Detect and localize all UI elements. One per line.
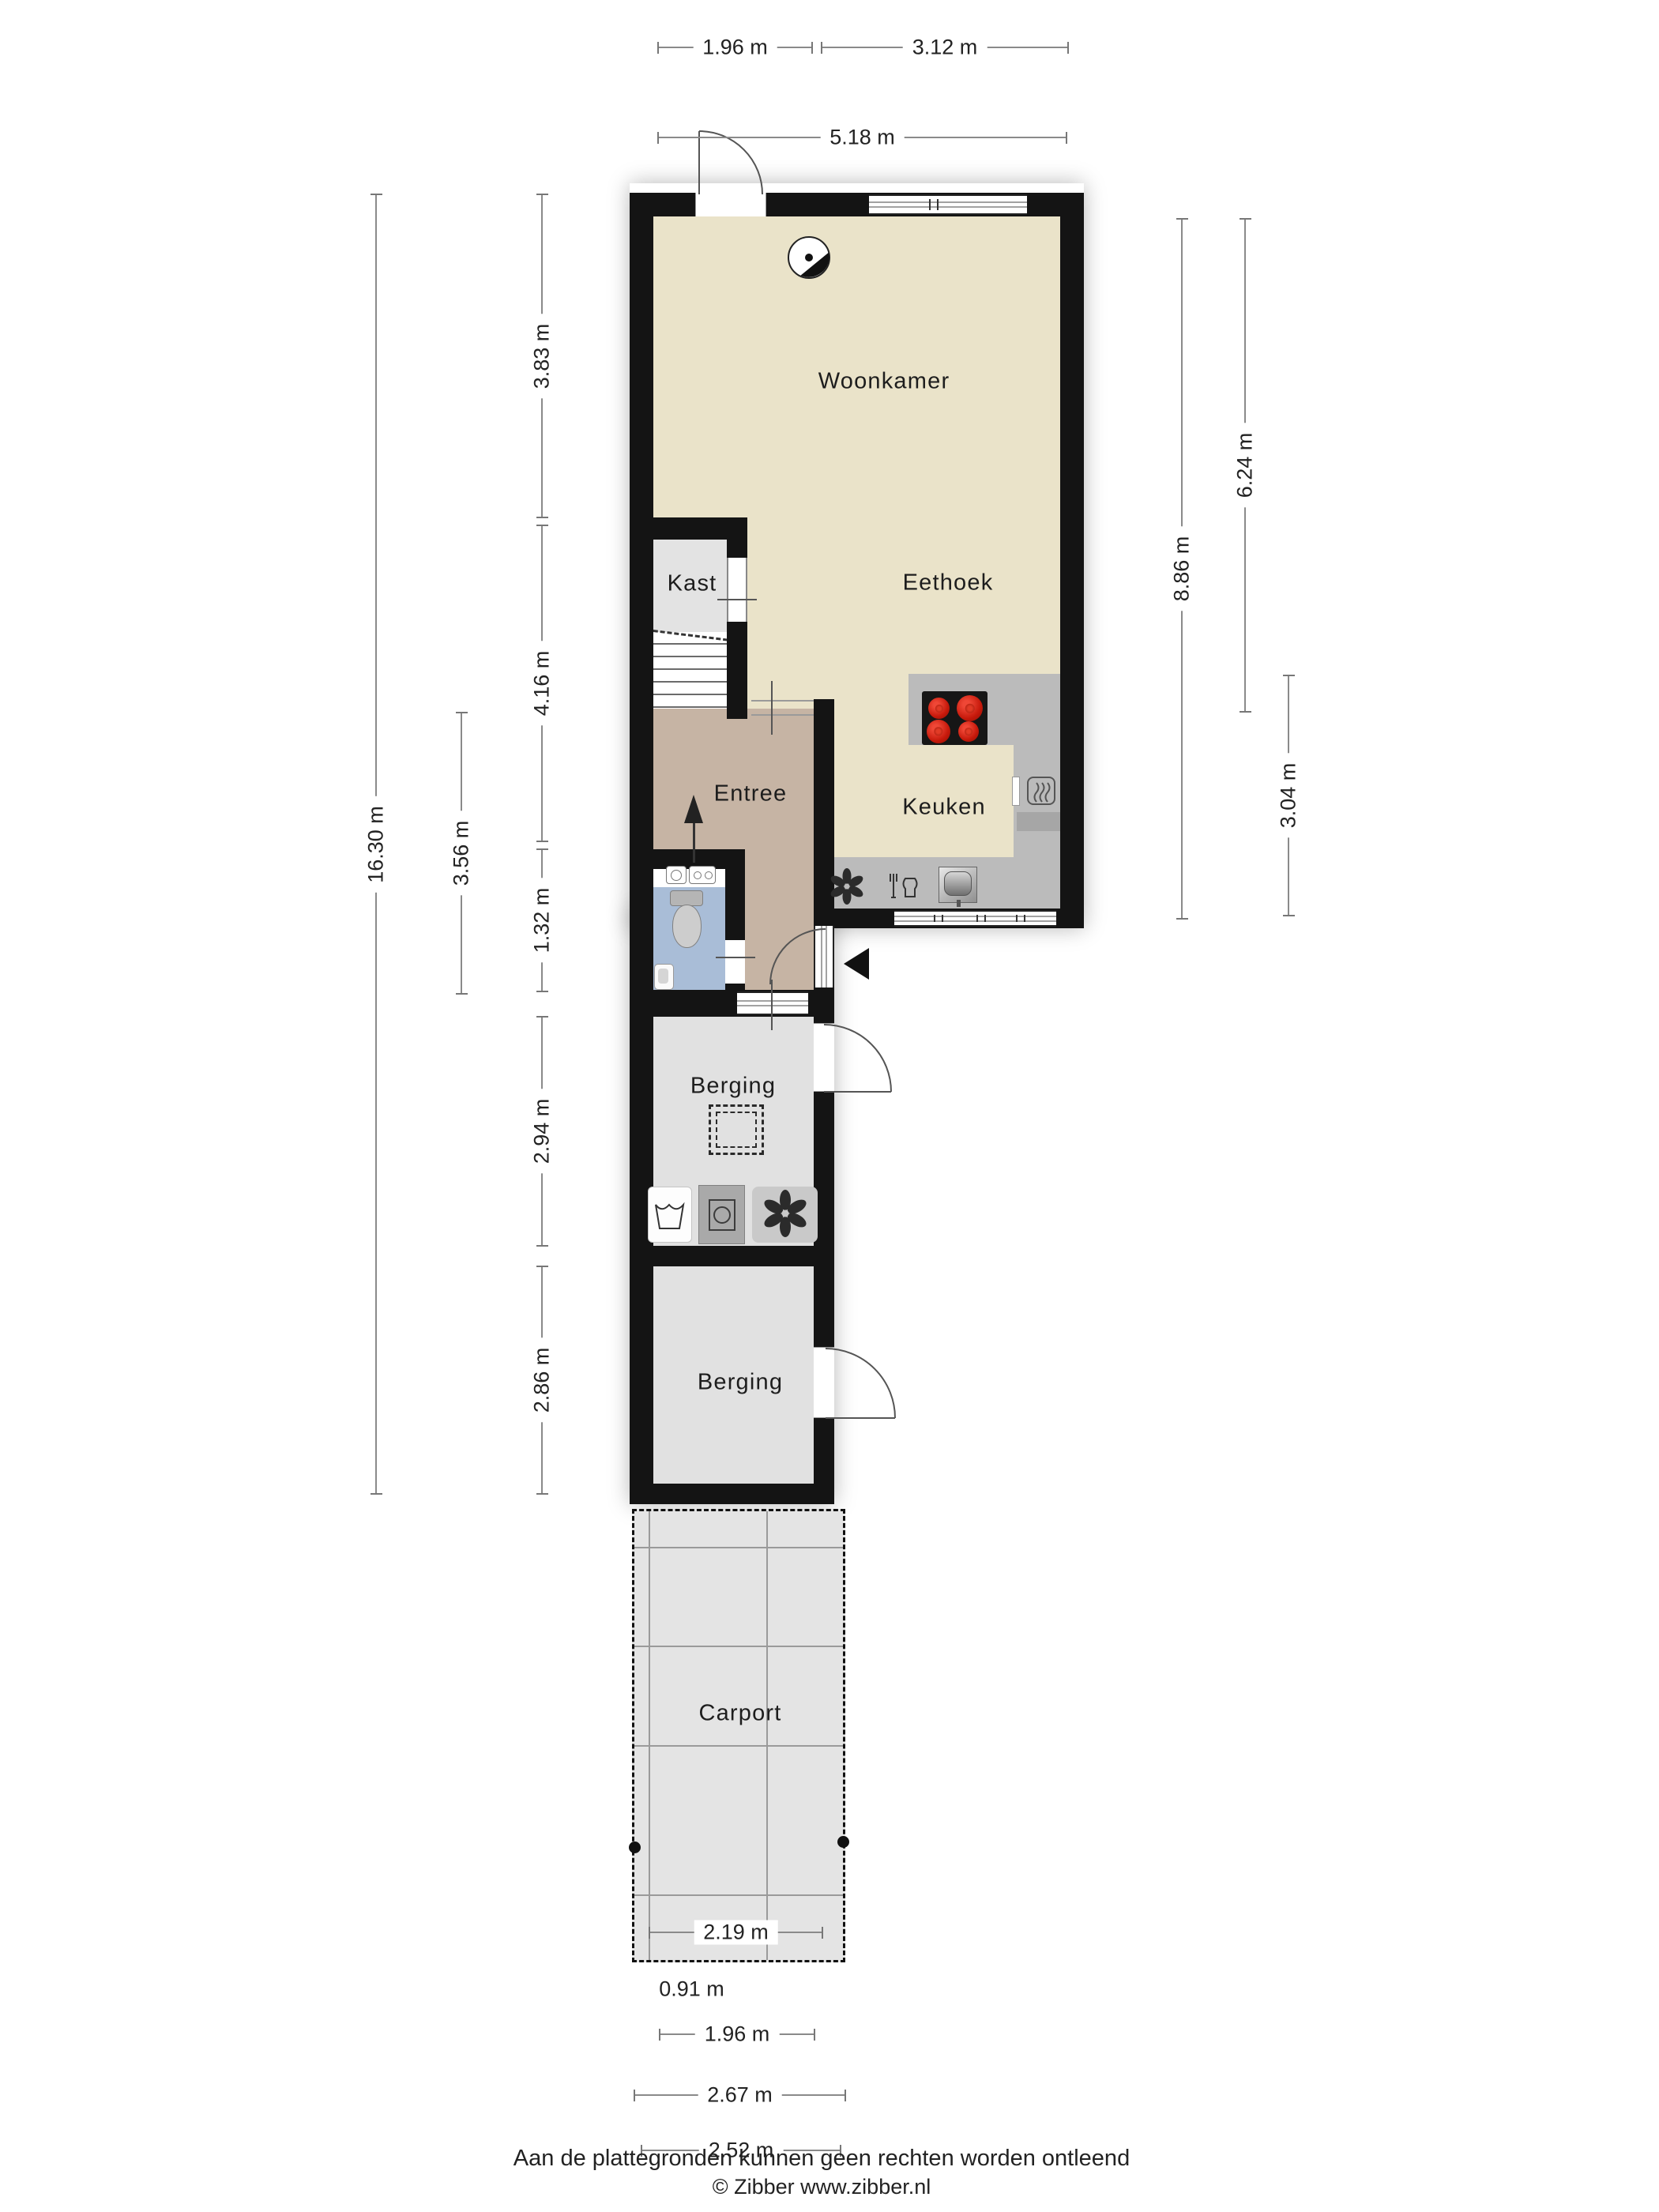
burner xyxy=(927,720,950,743)
window-woonkamer-top xyxy=(869,194,1027,215)
dishwasher-icon xyxy=(883,867,921,905)
dim-right-304: 3.04 m xyxy=(1288,675,1289,916)
carport-grid-v1 xyxy=(649,1511,650,1960)
burner xyxy=(958,721,979,742)
entrance-arrow-icon xyxy=(844,948,869,980)
doorway-mark xyxy=(771,681,773,735)
vent-fan-icon xyxy=(752,1187,818,1243)
floor-entree xyxy=(653,709,814,849)
front-door-arc xyxy=(770,929,826,984)
top-door-arc xyxy=(699,131,766,198)
stairs xyxy=(653,632,727,709)
stairs-arrow-shaft xyxy=(693,822,695,863)
dim-bottom-091: 0.91 m xyxy=(656,1988,728,1990)
label-entree: Entree xyxy=(714,781,788,807)
window-entree-bottom xyxy=(737,991,808,1015)
dim-left-286: 2.86 m xyxy=(541,1266,543,1494)
dim-left-356: 3.56 m xyxy=(461,713,462,994)
dim-label: 2.86 m xyxy=(530,1338,555,1423)
berging1-door-arc xyxy=(824,1025,891,1092)
toilet-door-opening xyxy=(725,940,745,984)
wall-right xyxy=(1060,193,1084,928)
window-glass xyxy=(894,916,1056,921)
dim-label: 3.04 m xyxy=(1277,754,1301,838)
carport-grid-h4 xyxy=(634,1894,843,1896)
dim-left-132: 1.32 m xyxy=(541,849,543,991)
dim-label: 16.30 m xyxy=(364,796,389,893)
dim-label: 0.91 m xyxy=(649,1977,734,2002)
dim-label: 1.96 m xyxy=(693,36,777,60)
dim-label: 2.19 m xyxy=(694,1920,778,1945)
wall-kast-top xyxy=(630,517,747,540)
label-keuken: Keuken xyxy=(902,795,986,821)
dim-top-518: 5.18 m xyxy=(658,137,1066,138)
dim-label: 2.94 m xyxy=(530,1089,555,1174)
dim-top-312: 3.12 m xyxy=(822,47,1068,48)
label-berging-1: Berging xyxy=(690,1074,776,1100)
kitchen-counter-dark-block xyxy=(1017,812,1060,831)
dim-label: 4.16 m xyxy=(530,641,555,726)
window-keuken-bottom xyxy=(894,910,1056,927)
floor-hatch-icon xyxy=(709,1104,764,1155)
dim-label: 6.24 m xyxy=(1233,423,1258,508)
carport-grid-v2 xyxy=(766,1511,768,1960)
dim-label: 3.12 m xyxy=(903,36,987,60)
toilet-icon xyxy=(670,890,703,949)
cooktop-icon xyxy=(922,691,987,745)
wall-berging-divider xyxy=(630,1246,834,1266)
carport-grid-h3 xyxy=(634,1745,843,1747)
stairs-arrow-head xyxy=(684,795,703,823)
window-mullion xyxy=(1016,915,1025,922)
burner xyxy=(957,695,983,721)
window-glass xyxy=(737,1001,808,1006)
kitchen-appliance-front xyxy=(1012,777,1020,806)
window-mullion xyxy=(929,199,939,210)
wall-berging2-bottom xyxy=(630,1484,834,1504)
dim-right-624: 6.24 m xyxy=(1244,219,1246,712)
label-eethoek: Eethoek xyxy=(903,570,994,596)
washing-machine-icon xyxy=(698,1185,745,1244)
oven-icon xyxy=(1027,777,1055,805)
flush-plate-icon xyxy=(689,866,716,884)
window-glass xyxy=(869,202,1027,208)
wall-left xyxy=(630,193,653,1504)
window-mullion xyxy=(934,915,943,922)
wall-toilet-top xyxy=(630,849,745,869)
label-kast: Kast xyxy=(668,571,717,597)
dim-bottom-196: 1.96 m xyxy=(660,2033,814,2035)
dim-label: 8.86 m xyxy=(1170,527,1194,611)
carport-post-right xyxy=(837,1836,849,1848)
dim-left-1630: 16.30 m xyxy=(375,194,377,1494)
toilet-roll-holder-icon xyxy=(666,866,687,884)
carport-post-left xyxy=(629,1841,641,1853)
kast-door-opening xyxy=(727,558,747,622)
burner xyxy=(928,698,950,719)
kast-door-mark xyxy=(717,599,757,600)
berging2-door-arc xyxy=(826,1349,895,1418)
dim-left-294: 2.94 m xyxy=(541,1017,543,1246)
carport-grid-h2 xyxy=(634,1646,843,1647)
label-carport: Carport xyxy=(698,1701,781,1727)
carport-grid-h1 xyxy=(634,1547,843,1548)
sink-icon xyxy=(939,867,977,903)
dim-left-383: 3.83 m xyxy=(541,194,543,517)
toilet-door-mark xyxy=(716,957,755,958)
dim-label: 1.96 m xyxy=(695,2022,780,2047)
window-mullion xyxy=(976,915,986,922)
dim-bottom-219: 2.19 m xyxy=(649,1932,822,1933)
dim-label: 3.56 m xyxy=(450,811,474,896)
footer-credit: © Zibber www.zibber.nl xyxy=(0,2175,1643,2199)
dim-label: 5.18 m xyxy=(820,126,905,150)
floor-plan: Woonkamer Eethoek Kast Entree Keuken Ber… xyxy=(0,0,1659,2212)
footer-disclaimer: Aan de plattegronden kunnen geen rechten… xyxy=(0,2146,1643,2172)
ceiling-light-icon xyxy=(787,235,831,280)
dim-right-886: 8.86 m xyxy=(1181,219,1183,919)
dim-label: 3.83 m xyxy=(530,314,555,398)
hand-basin-icon xyxy=(654,964,674,990)
dim-bottom-267: 2.67 m xyxy=(634,2094,845,2096)
laundry-sink-icon xyxy=(648,1187,692,1243)
front-door-leaf xyxy=(771,980,773,1030)
extractor-fan-icon xyxy=(829,868,865,905)
label-woonkamer: Woonkamer xyxy=(818,369,950,395)
doorway-entree-woonkamer xyxy=(751,700,814,716)
dim-label: 2.67 m xyxy=(698,2083,782,2108)
carport-area xyxy=(632,1509,845,1962)
dim-label: 1.32 m xyxy=(530,878,555,963)
dim-top-196: 1.96 m xyxy=(658,47,812,48)
label-berging-2: Berging xyxy=(698,1370,783,1396)
dim-left-416: 4.16 m xyxy=(541,525,543,841)
